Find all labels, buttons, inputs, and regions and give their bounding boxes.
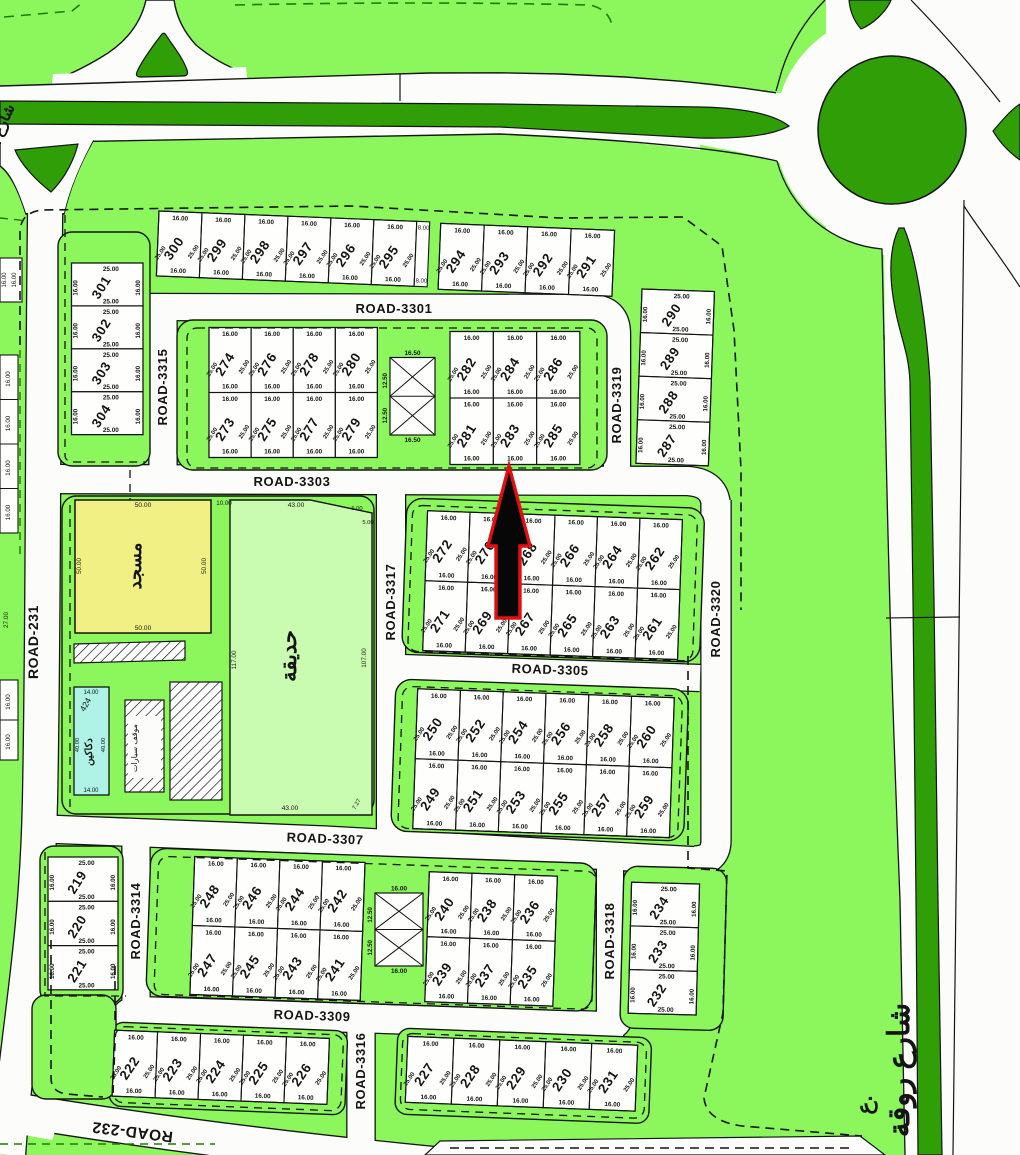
svg-text:16.00: 16.00 [608,591,624,599]
svg-text:16.00: 16.00 [464,402,480,409]
svg-text:16.00: 16.00 [471,764,487,772]
svg-text:16.00: 16.00 [387,224,404,232]
svg-text:40.00: 40.00 [75,738,81,753]
svg-text:43.00: 43.00 [282,805,299,812]
svg-text:16.00: 16.00 [469,1042,486,1050]
svg-text:16.00: 16.00 [385,276,402,284]
svg-text:16.00: 16.00 [557,767,573,775]
svg-text:43.00: 43.00 [288,502,305,509]
svg-text:16.00: 16.00 [348,331,364,338]
svg-text:16.00: 16.00 [344,222,361,230]
svg-text:16.00: 16.00 [526,944,542,952]
svg-text:ROAD-3314: ROAD-3314 [128,882,143,959]
svg-text:12.50: 12.50 [367,907,374,923]
svg-text:16.00: 16.00 [49,963,56,979]
svg-text:5.00: 5.00 [362,520,373,526]
svg-text:16.00: 16.00 [73,365,80,381]
svg-text:25.00: 25.00 [658,973,675,980]
svg-text:16.00: 16.00 [348,449,364,456]
svg-text:16.00: 16.00 [391,968,407,975]
svg-text:16.00: 16.00 [582,286,599,294]
svg-text:16.00: 16.00 [524,575,540,583]
svg-text:25.00: 25.00 [669,413,686,421]
svg-text:25.00: 25.00 [659,963,676,970]
svg-text:107.00: 107.00 [361,648,368,668]
svg-text:16.00: 16.00 [597,826,613,834]
svg-text:16.00: 16.00 [637,437,645,453]
svg-text:16.00: 16.00 [212,1091,229,1099]
svg-text:16.00: 16.00 [466,1096,483,1104]
svg-text:16.50: 16.50 [405,437,421,444]
svg-text:16.00: 16.00 [485,877,501,885]
svg-text:16.00: 16.00 [606,1048,623,1056]
svg-text:16.00: 16.00 [514,753,530,761]
svg-text:16.00: 16.00 [550,335,566,342]
svg-text:16.00: 16.00 [5,694,12,710]
svg-text:ROAD-3301: ROAD-3301 [356,301,433,316]
svg-text:ROAD-3317: ROAD-3317 [383,564,398,641]
svg-text:25.00: 25.00 [79,860,95,867]
svg-text:16.00: 16.00 [256,271,273,279]
svg-text:16.00: 16.00 [606,648,622,656]
svg-text:16.00: 16.00 [441,928,457,936]
svg-text:16.00: 16.00 [2,272,8,288]
svg-text:16.00: 16.00 [452,281,469,289]
svg-text:16.00: 16.00 [566,577,582,585]
svg-text:16.00: 16.00 [438,585,454,593]
svg-text:25.00: 25.00 [103,384,119,391]
svg-text:16.00: 16.00 [585,233,602,241]
svg-text:16.00: 16.00 [306,396,322,403]
svg-text:16.00: 16.00 [110,919,117,935]
svg-text:16.00: 16.00 [12,272,18,288]
svg-text:16.00: 16.00 [5,371,12,387]
svg-text:16.00: 16.00 [420,1094,437,1102]
svg-text:16.00: 16.00 [550,456,566,463]
svg-text:16.00: 16.00 [640,350,648,366]
svg-text:16.00: 16.00 [498,229,515,237]
svg-text:16.00: 16.00 [391,886,407,893]
svg-text:16.00: 16.00 [135,408,142,424]
svg-text:16.00: 16.00 [205,929,221,937]
svg-text:16.00: 16.00 [423,1040,440,1048]
svg-text:16.00: 16.00 [524,996,540,1004]
svg-text:16.00: 16.00 [428,763,444,771]
svg-text:16.00: 16.00 [348,384,364,391]
svg-text:16.00: 16.00 [701,439,709,455]
svg-text:16.00: 16.00 [73,408,80,424]
svg-text:16.00: 16.00 [306,331,322,338]
svg-text:16.00: 16.00 [469,822,485,830]
svg-text:16.00: 16.00 [293,863,309,871]
svg-text:25.00: 25.00 [669,424,686,432]
svg-text:16.00: 16.00 [222,384,238,391]
svg-text:10.00: 10.00 [216,500,232,507]
svg-text:25.00: 25.00 [103,298,119,305]
svg-text:16.00: 16.00 [264,396,280,403]
svg-text:16.00: 16.00 [555,825,571,833]
svg-text:16.00: 16.00 [335,865,351,873]
svg-text:16.00: 16.00 [608,578,624,586]
svg-text:16.00: 16.00 [702,395,710,411]
svg-text:16.00: 16.00 [439,572,455,580]
svg-text:16.00: 16.00 [436,642,452,650]
svg-text:16.00: 16.00 [539,284,556,292]
svg-text:16.00: 16.00 [516,696,532,704]
svg-text:16.00: 16.00 [126,1088,143,1096]
svg-text:25.00: 25.00 [668,457,685,465]
svg-text:16.00: 16.00 [464,335,480,342]
svg-text:16.00: 16.00 [642,770,658,778]
svg-text:16.00: 16.00 [648,650,664,658]
svg-text:16.00: 16.00 [331,990,347,998]
svg-text:16.00: 16.00 [206,917,222,925]
svg-text:16.00: 16.00 [298,1094,315,1102]
svg-text:16.00: 16.00 [110,874,117,890]
svg-text:16.00: 16.00 [306,384,322,391]
svg-text:16.00: 16.00 [49,874,56,890]
svg-text:16.00: 16.00 [640,828,656,836]
svg-text:25.00: 25.00 [660,930,677,937]
svg-text:16.00: 16.00 [541,231,558,239]
svg-text:16.00: 16.00 [291,932,307,940]
svg-text:16.00: 16.00 [172,215,189,223]
svg-text:16.00: 16.00 [691,901,698,917]
svg-text:مسجد: مسجد [125,543,145,590]
svg-text:16.00: 16.00 [250,862,266,870]
svg-text:شارع روقة: شارع روقة [883,1003,917,1137]
svg-text:16.00: 16.00 [214,1038,231,1046]
svg-text:دكاكين: دكاكين [84,738,95,766]
svg-text:25.00: 25.00 [674,293,691,301]
svg-text:16.00: 16.00 [222,396,238,403]
svg-text:16.00: 16.00 [257,1039,274,1047]
svg-text:موقف سيارات: موقف سيارات [130,724,139,772]
svg-text:16.00: 16.00 [5,504,12,520]
svg-text:16.00: 16.00 [248,931,264,939]
svg-text:16.00: 16.00 [558,1099,575,1107]
svg-text:16.00: 16.00 [426,820,442,828]
svg-text:16.00: 16.00 [526,518,542,526]
svg-text:16.00: 16.00 [128,1034,145,1042]
svg-text:16.00: 16.00 [135,322,142,338]
svg-text:16.00: 16.00 [507,389,523,396]
svg-text:12.50: 12.50 [367,939,374,955]
svg-text:16.00: 16.00 [440,941,456,949]
svg-text:ROAD-3305: ROAD-3305 [511,661,588,678]
svg-text:16.00: 16.00 [557,755,573,763]
svg-text:25.00: 25.00 [660,919,677,926]
svg-text:16.00: 16.00 [291,920,307,928]
svg-text:50.00: 50.00 [135,625,152,632]
svg-text:16.00: 16.00 [514,1044,531,1052]
svg-text:ROAD-231: ROAD-231 [25,605,41,679]
svg-text:25.00: 25.00 [103,395,119,402]
svg-text:16.00: 16.00 [645,700,661,708]
svg-text:16.00: 16.00 [342,274,359,282]
svg-text:25.00: 25.00 [79,982,95,989]
svg-text:16.00: 16.00 [299,273,316,281]
svg-text:16.00: 16.00 [599,769,615,777]
svg-text:16.00: 16.00 [507,402,523,409]
svg-text:16.00: 16.00 [454,227,471,235]
svg-text:16.00: 16.00 [135,365,142,381]
svg-text:16.00: 16.00 [208,860,224,868]
svg-text:16.00: 16.00 [258,218,275,226]
svg-text:16.00: 16.00 [550,389,566,396]
svg-text:16.00: 16.00 [600,756,616,764]
svg-text:16.00: 16.00 [5,415,12,431]
svg-text:16.00: 16.00 [246,987,262,995]
svg-text:50.00: 50.00 [201,558,208,574]
svg-text:25.00: 25.00 [79,938,95,945]
svg-text:16.50: 16.50 [405,350,421,357]
svg-text:16.00: 16.00 [528,879,544,887]
svg-text:16.00: 16.00 [289,989,305,997]
svg-text:16.00: 16.00 [442,876,458,884]
svg-text:50.00: 50.00 [135,502,152,509]
svg-text:16.00: 16.00 [483,942,499,950]
svg-text:16.00: 16.00 [512,823,528,831]
svg-text:16.00: 16.00 [560,1046,577,1054]
svg-text:40.00: 40.00 [101,738,107,753]
svg-text:25.00: 25.00 [658,1007,675,1014]
svg-text:16.00: 16.00 [5,734,12,750]
svg-text:16.00: 16.00 [301,220,318,228]
svg-text:25.00: 25.00 [103,352,119,359]
svg-text:14.00: 14.00 [83,788,99,794]
svg-text:16.00: 16.00 [170,268,187,276]
svg-text:ROAD-3318: ROAD-3318 [602,903,617,980]
svg-text:16.00: 16.00 [526,931,542,939]
svg-text:ROAD-3303: ROAD-3303 [254,474,331,489]
svg-text:16.00: 16.00 [564,647,580,655]
svg-text:16.00: 16.00 [521,645,537,653]
svg-text:16.00: 16.00 [651,580,667,588]
svg-text:16.00: 16.00 [604,1101,621,1109]
svg-text:16.00: 16.00 [632,899,639,915]
svg-text:16.00: 16.00 [248,918,264,926]
svg-text:16.00: 16.00 [171,1036,188,1044]
svg-text:16.00: 16.00 [653,522,669,530]
svg-text:ROAD-3307: ROAD-3307 [286,830,363,848]
svg-text:16.00: 16.00 [49,919,56,935]
svg-text:16.00: 16.00 [642,306,650,322]
svg-text:12.50: 12.50 [382,372,389,388]
svg-text:25.00: 25.00 [103,427,119,434]
svg-text:16.00: 16.00 [481,995,497,1003]
svg-text:16.00: 16.00 [566,589,582,597]
svg-text:16.00: 16.00 [215,217,232,225]
svg-text:ROAD-3319: ROAD-3319 [609,367,624,444]
svg-text:16.00: 16.00 [438,993,454,1001]
svg-text:16.00: 16.00 [472,752,488,760]
svg-text:16.00: 16.00 [441,515,457,523]
svg-text:16.00: 16.00 [688,988,695,1004]
svg-text:16.00: 16.00 [507,335,523,342]
svg-text:16.00: 16.00 [222,449,238,456]
svg-text:16.00: 16.00 [5,460,12,476]
svg-text:16.00: 16.00 [203,986,219,994]
svg-text:16.00: 16.00 [222,331,238,338]
svg-text:16.00: 16.00 [705,308,713,324]
svg-text:16.00: 16.00 [300,1041,317,1049]
svg-text:16.00: 16.00 [110,963,117,979]
svg-text:25.00: 25.00 [103,341,119,348]
svg-text:16.00: 16.00 [464,389,480,396]
svg-text:8.00: 8.00 [418,225,431,231]
svg-text:25.00: 25.00 [103,266,119,273]
svg-text:117.00: 117.00 [231,650,238,670]
svg-text:16.00: 16.00 [643,758,659,766]
svg-text:16.00: 16.00 [429,750,445,758]
svg-text:ROAD-3309: ROAD-3309 [273,1007,350,1024]
svg-text:16.00: 16.00 [568,519,584,527]
svg-text:16.00: 16.00 [135,280,142,296]
svg-text:16.00: 16.00 [602,699,618,707]
svg-text:25.00: 25.00 [670,380,687,388]
svg-text:16.00: 16.00 [483,930,499,938]
svg-text:16.00: 16.00 [639,393,647,409]
svg-text:16.00: 16.00 [650,592,666,600]
svg-text:50.00: 50.00 [76,558,83,574]
svg-text:25.00: 25.00 [79,949,95,956]
svg-text:16.00: 16.00 [264,331,280,338]
svg-text:14.00: 14.00 [83,690,99,696]
svg-text:16.00: 16.00 [464,456,480,463]
svg-text:16.00: 16.00 [348,396,364,403]
svg-text:16.00: 16.00 [264,449,280,456]
svg-text:25.00: 25.00 [672,337,689,345]
svg-text:16.00: 16.00 [213,269,230,277]
svg-text:ROAD-3320: ROAD-3320 [708,581,723,658]
svg-text:16.00: 16.00 [264,384,280,391]
svg-text:16.00: 16.00 [610,521,626,529]
svg-text:16.00: 16.00 [495,283,512,291]
svg-text:16.00: 16.00 [514,766,530,774]
svg-text:16.00: 16.00 [479,644,495,652]
svg-text:16.00: 16.00 [559,697,575,705]
svg-text:25.00: 25.00 [671,370,688,378]
svg-text:16.00: 16.00 [631,943,638,959]
svg-text:16.00: 16.00 [629,987,636,1003]
svg-text:16.00: 16.00 [512,1097,529,1105]
svg-text:8.00: 8.00 [415,278,428,284]
svg-text:16.00: 16.00 [704,352,712,368]
svg-text:16.00: 16.00 [334,921,350,929]
svg-text:16.00: 16.00 [333,934,349,942]
svg-text:ROAD-3316: ROAD-3316 [353,1033,368,1110]
svg-text:16.00: 16.00 [306,449,322,456]
svg-text:25.00: 25.00 [672,326,689,334]
svg-text:16.00: 16.00 [169,1089,186,1097]
svg-text:16.00: 16.00 [255,1093,272,1101]
svg-text:16.00: 16.00 [550,402,566,409]
svg-text:25.00: 25.00 [661,886,678,893]
svg-text:16.00: 16.00 [431,693,447,701]
svg-text:حديقة: حديقة [278,630,301,682]
svg-text:ROAD-3315: ROAD-3315 [155,349,170,426]
svg-text:25.00: 25.00 [103,309,119,316]
svg-text:25.00: 25.00 [79,904,95,911]
svg-text:16.00: 16.00 [73,280,80,296]
svg-text:6.00: 6.00 [351,506,362,512]
svg-text:12.50: 12.50 [382,407,389,423]
svg-text:27.00: 27.00 [3,612,10,628]
svg-text:25.00: 25.00 [79,894,95,901]
svg-text:ع.: ع. [852,1095,878,1114]
svg-text:16.00: 16.00 [73,322,80,338]
svg-text:16.00: 16.00 [523,588,539,596]
svg-text:16.00: 16.00 [690,944,697,960]
svg-text:16.00: 16.00 [474,694,490,702]
